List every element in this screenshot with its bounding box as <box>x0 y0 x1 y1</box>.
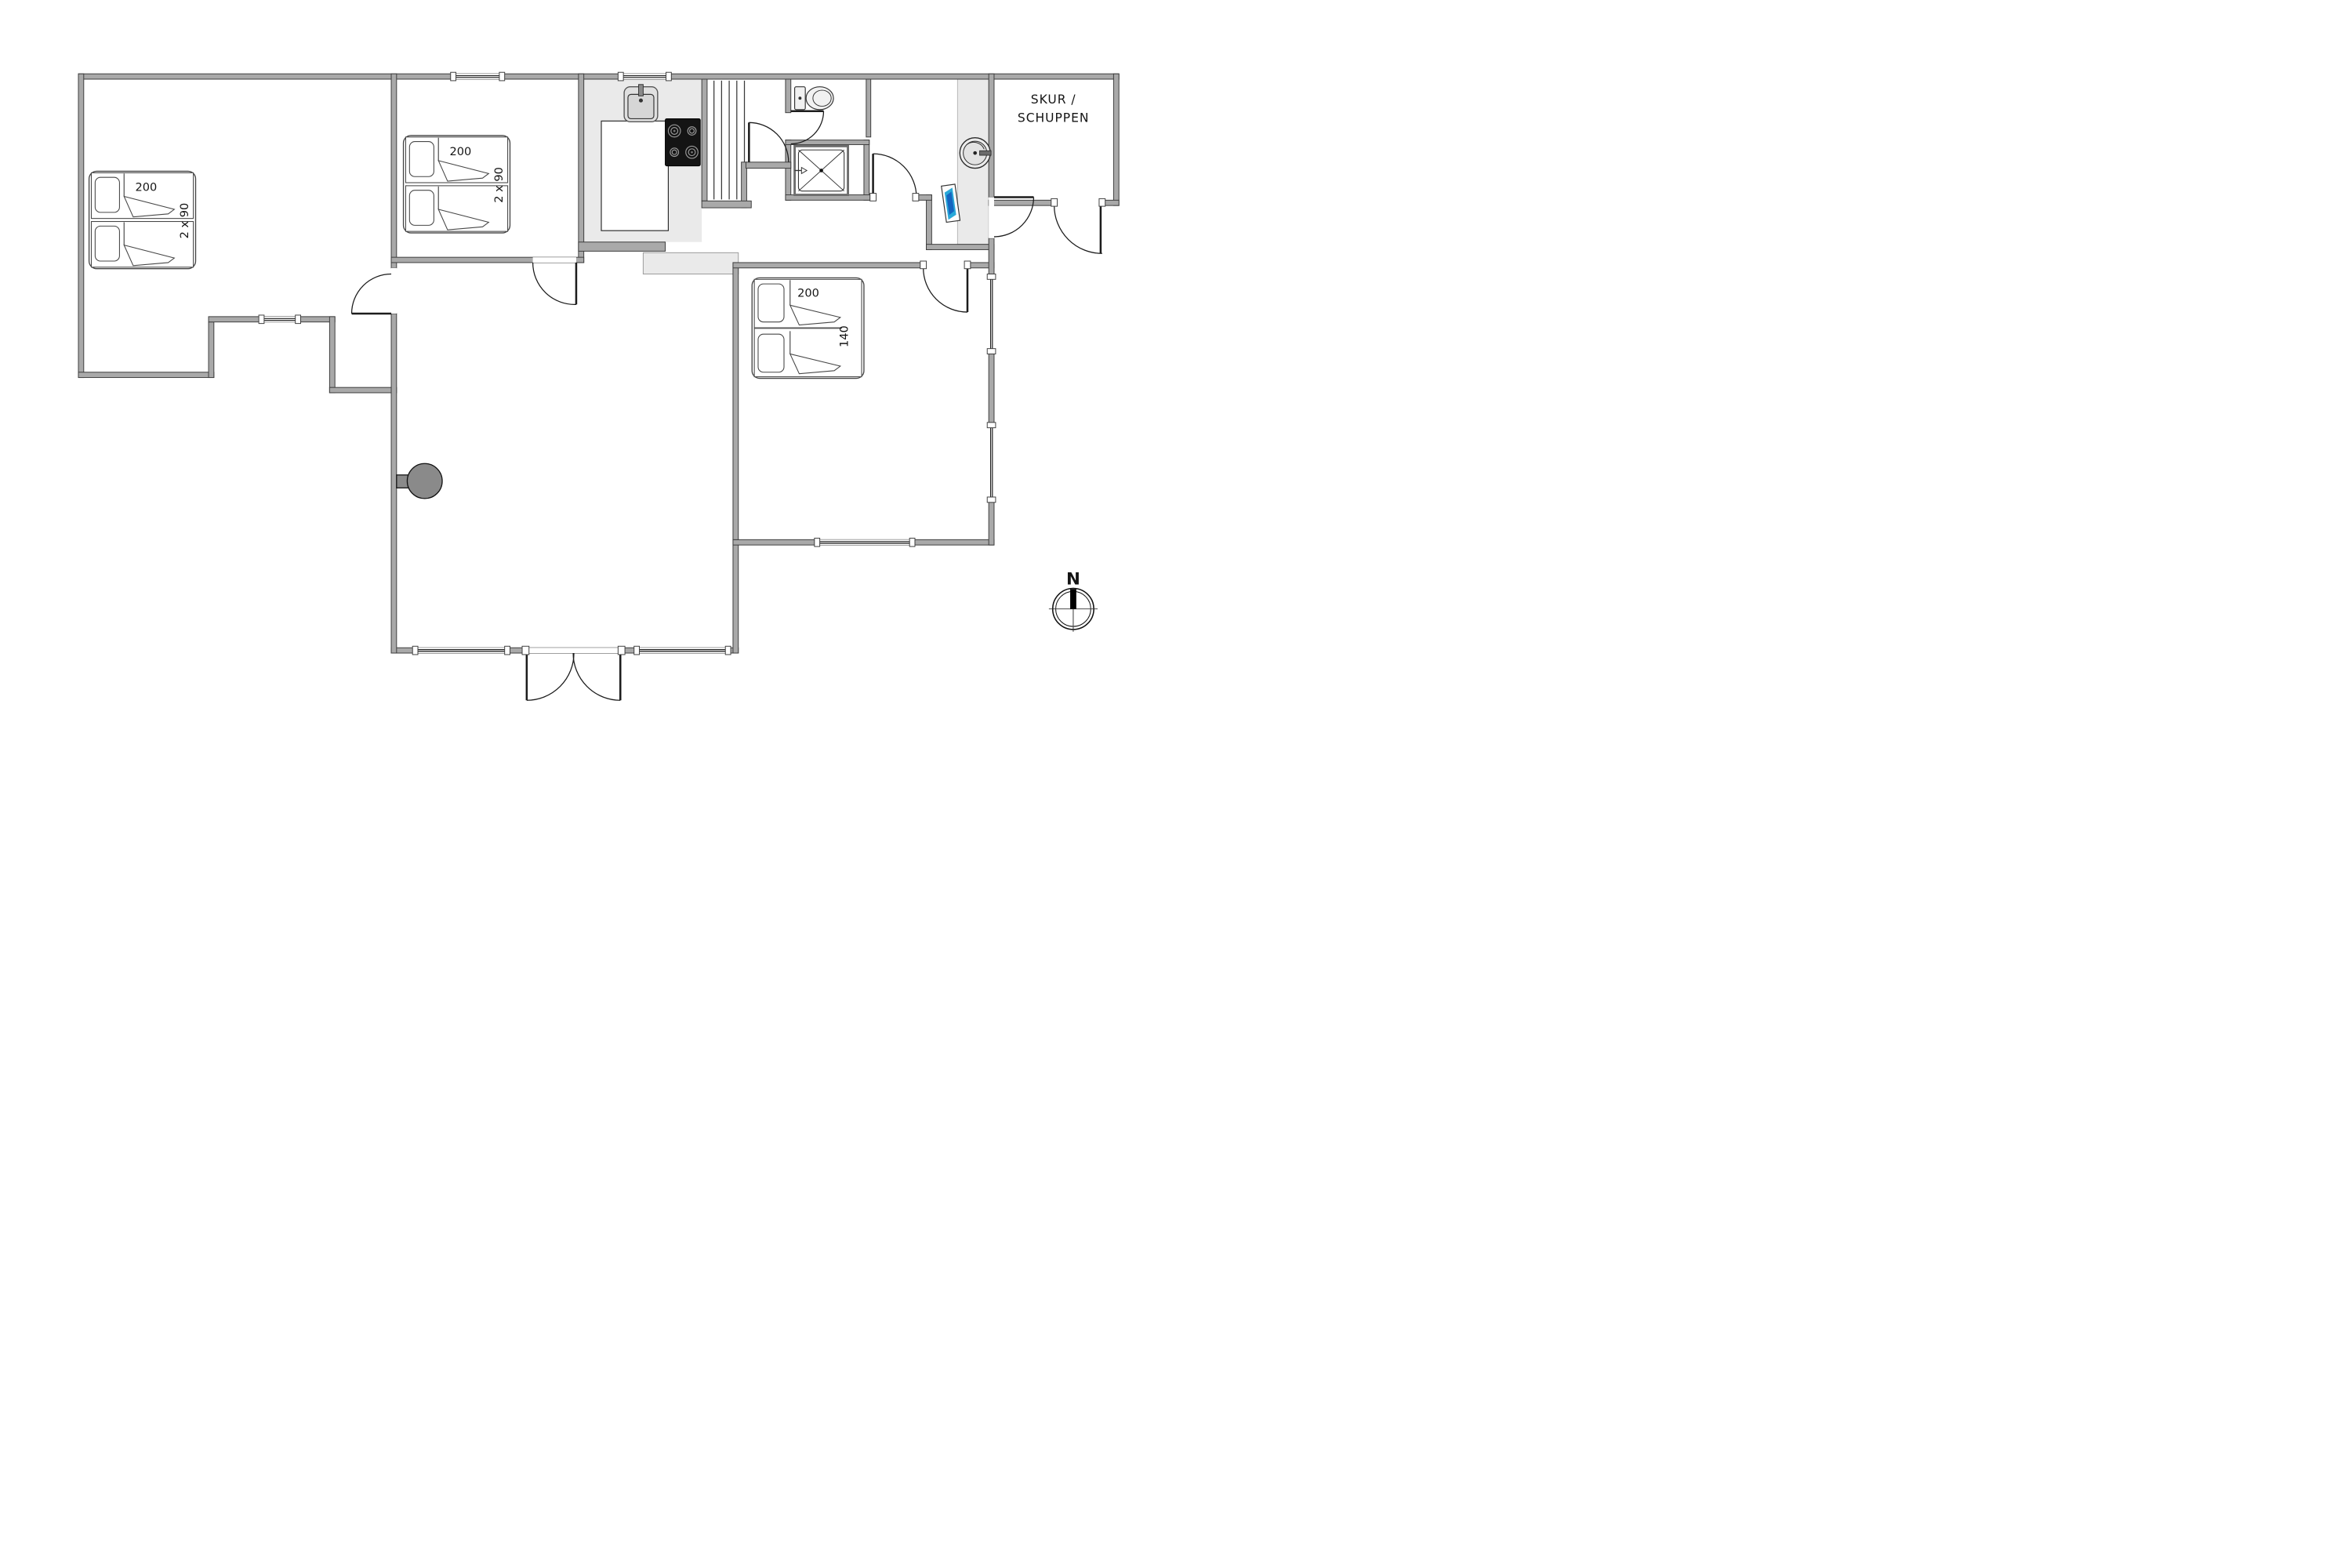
wall-living-se <box>733 539 739 653</box>
pillow <box>95 226 119 261</box>
door-bedroom2 <box>533 257 576 304</box>
washbasin <box>960 138 991 169</box>
pillow <box>758 334 784 372</box>
pillow <box>95 177 119 212</box>
wall-kitchen-south <box>579 242 666 252</box>
wall-bedroom3-top-a <box>733 263 924 268</box>
wall-nook-south <box>927 245 994 250</box>
sauna-benches <box>714 81 745 199</box>
door-bedroom1 <box>352 268 397 314</box>
toilet <box>795 87 834 110</box>
wall-bottom-bedroom1 <box>78 372 214 378</box>
window-right-upper <box>987 274 996 354</box>
door-wc <box>791 111 824 144</box>
bedroom2-width-label: 2 x 90 <box>492 167 506 203</box>
wall-right-c <box>989 350 994 426</box>
window-right-lower <box>987 423 996 503</box>
bedroom1-length-label: 200 <box>136 181 158 194</box>
door-entrance-french <box>522 646 625 700</box>
sink <box>624 85 658 122</box>
compass-north-label: N <box>1066 570 1080 590</box>
wall-bedroom3-left <box>733 263 739 539</box>
door-sauna <box>749 122 788 162</box>
pillow <box>409 191 434 226</box>
wall-living-west <box>391 314 397 653</box>
compass-north-needle <box>1070 589 1076 608</box>
wall-step-right <box>329 317 335 393</box>
wall-right-b <box>989 238 994 278</box>
wall-right-a <box>989 74 994 197</box>
wall-hall-jog <box>927 195 932 250</box>
wall-sauna-left <box>702 79 707 201</box>
wall-bedroom2-right <box>579 74 584 263</box>
wall-sauna-bottom <box>702 201 751 208</box>
door-hall <box>870 154 919 201</box>
door-shed <box>1051 198 1105 253</box>
wall-shed-right <box>1113 74 1119 205</box>
wall-sauna-step <box>746 162 790 169</box>
shed-label-line2: SCHUPPEN <box>1018 111 1090 125</box>
wall-shower-right <box>864 140 869 201</box>
wardrobe-counter-band <box>643 252 738 274</box>
sink-faucet-icon <box>639 85 644 96</box>
pillow <box>758 284 784 322</box>
wall-bottom-segment <box>329 387 396 393</box>
stove <box>666 118 701 165</box>
wall-shed-bottom-a <box>989 200 1054 205</box>
bedroom3-width-label: 140 <box>838 325 851 347</box>
wall-step-left <box>209 322 214 378</box>
bedroom3-length-label: 200 <box>797 287 819 300</box>
wall-top <box>78 74 1119 79</box>
compass-icon: N <box>1049 570 1098 632</box>
fireplace <box>397 463 442 499</box>
bedroom2-length-label: 200 <box>449 145 471 158</box>
door-bedroom3 <box>920 261 971 312</box>
floorplan-page: 200 2 x 90 200 2 x 90 200 140 SKUR / SCH… <box>0 0 1176 784</box>
wall-shower-top <box>786 140 869 145</box>
wall-wc-partition <box>866 79 871 137</box>
floorplan-canvas: 200 2 x 90 200 2 x 90 200 140 SKUR / SCH… <box>0 0 1176 784</box>
wall-left <box>78 74 84 377</box>
washbasin-faucet-icon <box>980 151 992 155</box>
kitchen-island-counter <box>601 121 668 230</box>
wall-bedroom1-right-upper <box>391 74 397 268</box>
wall-right-d <box>989 499 994 545</box>
shed-label-line1: SKUR / <box>1031 93 1076 107</box>
pillow <box>409 142 434 177</box>
wall-wc-left <box>786 79 791 113</box>
shower <box>795 146 848 194</box>
bedroom1-width-label: 2 x 90 <box>178 203 191 239</box>
